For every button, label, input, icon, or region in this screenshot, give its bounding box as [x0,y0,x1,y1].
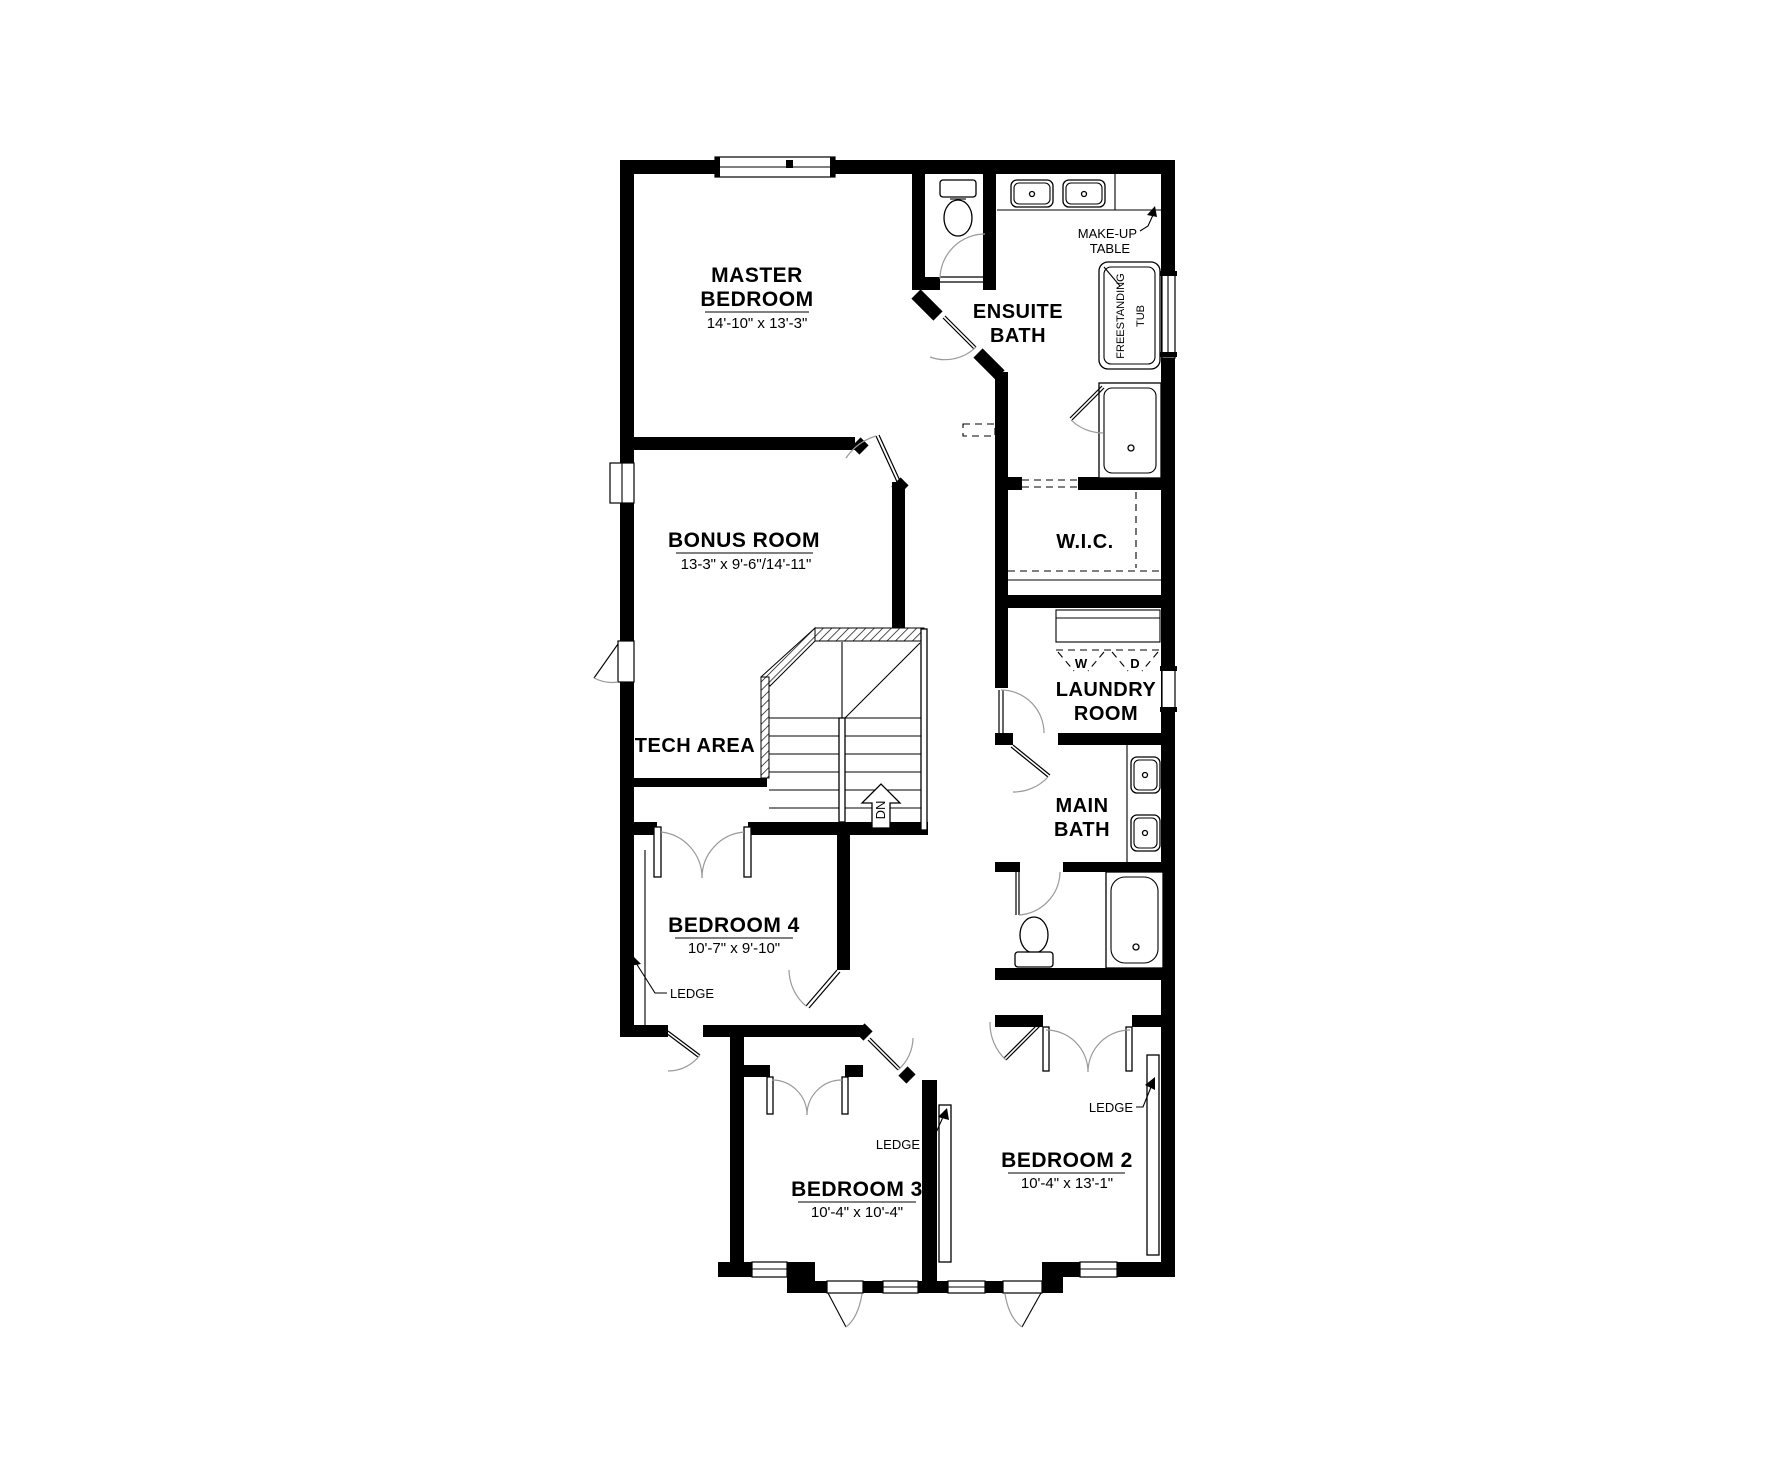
ensuite-sink-right [1063,180,1105,207]
bonus-room-dims: 13-3" x 9'-6"/14'-11" [681,556,812,573]
ensuite-bath-label-line2: BATH [990,325,1046,347]
window-ensuite-right [1160,271,1177,358]
window-bed2-bay [948,1281,985,1293]
window-master-top [715,157,835,177]
bedroom2-label: BEDROOM 2 [1001,1149,1133,1172]
bedroom4-dims: 10'-7" x 9'-10" [688,940,780,957]
bonus-room-label: BONUS ROOM [668,529,820,552]
floor-plan-page: DN MASTER BEDROOM 14'-10" x 13'-3" ENSUI… [0,0,1780,1480]
freestanding-tub-fixture [1099,262,1160,369]
window-bed3-step [752,1262,787,1277]
ensuite-bath-label-line1: ENSUITE [973,301,1063,323]
dn-label: DN [873,801,888,820]
main-bath-tub-fixture [1106,872,1163,968]
freestanding-tub-label-line1: FREESTANDING [1115,273,1127,358]
bedroom4-label: BEDROOM 4 [668,914,800,937]
washer-label: W [1075,656,1088,671]
main-bath-sink-top [1131,757,1160,793]
bedroom3-label: BEDROOM 3 [791,1178,923,1201]
bedroom4-ledge-label: LEDGE [670,986,714,1001]
wic-label: W.I.C. [1056,531,1113,553]
freestanding-tub-label-line2: TUB [1135,305,1147,327]
bedroom2-ledge-label: LEDGE [1089,1100,1133,1115]
master-bedroom-label-line2: BEDROOM [700,288,813,311]
bedroom3-ledge [939,1105,951,1262]
floor-plan-drawing: DN MASTER BEDROOM 14'-10" x 13'-3" ENSUI… [0,0,1780,1480]
window-laundry-right [1160,666,1177,712]
page-background [0,0,1780,1480]
window-bonus-left [610,463,634,503]
main-bath-sink-bottom [1131,815,1160,851]
main-bath-label-line1: MAIN [1055,795,1108,817]
bedroom3-dims: 10'-4" x 10'-4" [811,1204,903,1221]
window-bed3-bay [883,1281,918,1293]
dryer-label: D [1130,656,1139,671]
main-bath-label-line2: BATH [1054,819,1110,841]
makeup-table-label-line2: TABLE [1090,241,1131,256]
ensuite-sink-left [1011,180,1053,207]
window-bed2-step [1080,1262,1117,1277]
tech-area-label: TECH AREA [635,735,755,757]
makeup-table-label-line1: MAKE-UP [1078,226,1137,241]
laundry-room-label-line2: ROOM [1074,703,1138,725]
bedroom2-dims: 10'-4" x 13'-1" [1021,1175,1113,1192]
master-bedroom-label-line1: MASTER [711,264,803,287]
bedroom3-ledge-label: LEDGE [876,1137,920,1152]
laundry-room-label-line1: LAUNDRY [1056,679,1157,701]
master-bedroom-dims: 14'-10" x 13'-3" [707,315,808,332]
